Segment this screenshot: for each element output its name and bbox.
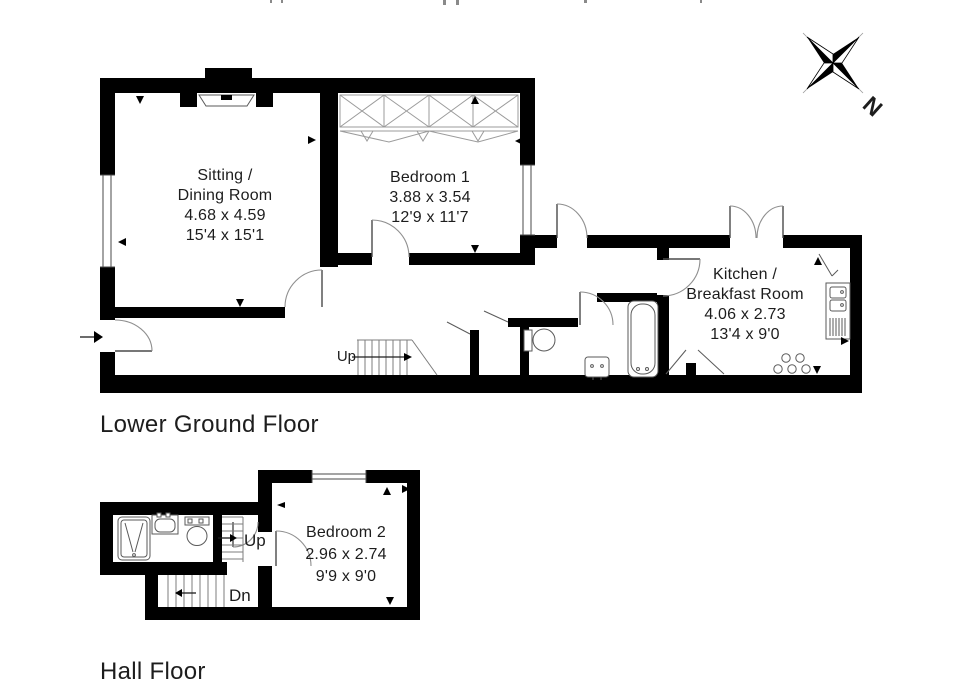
svg-text:Dining Room: Dining Room	[178, 187, 273, 204]
svg-text:4.06 x 2.73: 4.06 x 2.73	[704, 306, 785, 323]
floorplan-page: N	[0, 0, 967, 694]
svg-text:4.68 x 4.59: 4.68 x 4.59	[184, 207, 265, 224]
svg-text:9'9 x 9'0: 9'9 x 9'0	[316, 568, 376, 585]
room-label-sitting-dining: Sitting / Dining Room 4.68 x 4.59 15'4 x…	[178, 167, 273, 244]
measurement-ticks-hall	[277, 485, 410, 605]
room-label-bedroom1: Bedroom 1 3.88 x 3.54 12'9 x 11'7	[389, 169, 470, 226]
shower-room-fixtures	[118, 513, 209, 560]
lower-stairs-label: Up	[337, 348, 356, 365]
svg-text:Bedroom 2: Bedroom 2	[306, 524, 386, 541]
room-label-kitchen: Kitchen / Breakfast Room 4.06 x 2.73 13'…	[686, 266, 804, 343]
entry-arrow-icon	[80, 331, 103, 343]
lower-stairs	[352, 340, 437, 375]
compass-rose: N	[803, 33, 888, 122]
floorplan-drawing: N	[0, 0, 967, 694]
hall-stairs-up-label: Up	[244, 531, 266, 550]
hall-window	[312, 470, 366, 483]
lower-floor-label: Lower Ground Floor	[100, 411, 319, 438]
hall-stairs-down	[168, 575, 224, 607]
bathroom-fixtures	[524, 301, 658, 380]
svg-text:Bedroom 1: Bedroom 1	[390, 169, 470, 186]
svg-text:Breakfast Room: Breakfast Room	[686, 286, 804, 303]
hall-floor-label: Hall Floor	[100, 658, 206, 685]
svg-text:15'4 x 15'1: 15'4 x 15'1	[186, 227, 265, 244]
hall-stairs-down-label: Dn	[229, 586, 251, 605]
wardrobe-band	[340, 95, 518, 142]
svg-text:13'4 x 9'0: 13'4 x 9'0	[710, 326, 780, 343]
svg-text:12'9 x 11'7: 12'9 x 11'7	[391, 209, 468, 226]
fireplace	[199, 95, 254, 106]
svg-text:Kitchen /: Kitchen /	[713, 266, 777, 283]
lower-floor-plan: Up	[80, 68, 862, 438]
cropped-text-fragments	[270, 0, 702, 5]
compass-north-label: N	[858, 91, 888, 121]
svg-text:2.96 x 2.74: 2.96 x 2.74	[305, 546, 386, 563]
room-label-bedroom2: Bedroom 2 2.96 x 2.74 9'9 x 9'0	[305, 524, 386, 585]
svg-text:3.88 x 3.54: 3.88 x 3.54	[389, 189, 470, 206]
svg-text:Sitting /: Sitting /	[197, 167, 253, 184]
hall-floor-plan: Up Dn	[100, 470, 420, 685]
